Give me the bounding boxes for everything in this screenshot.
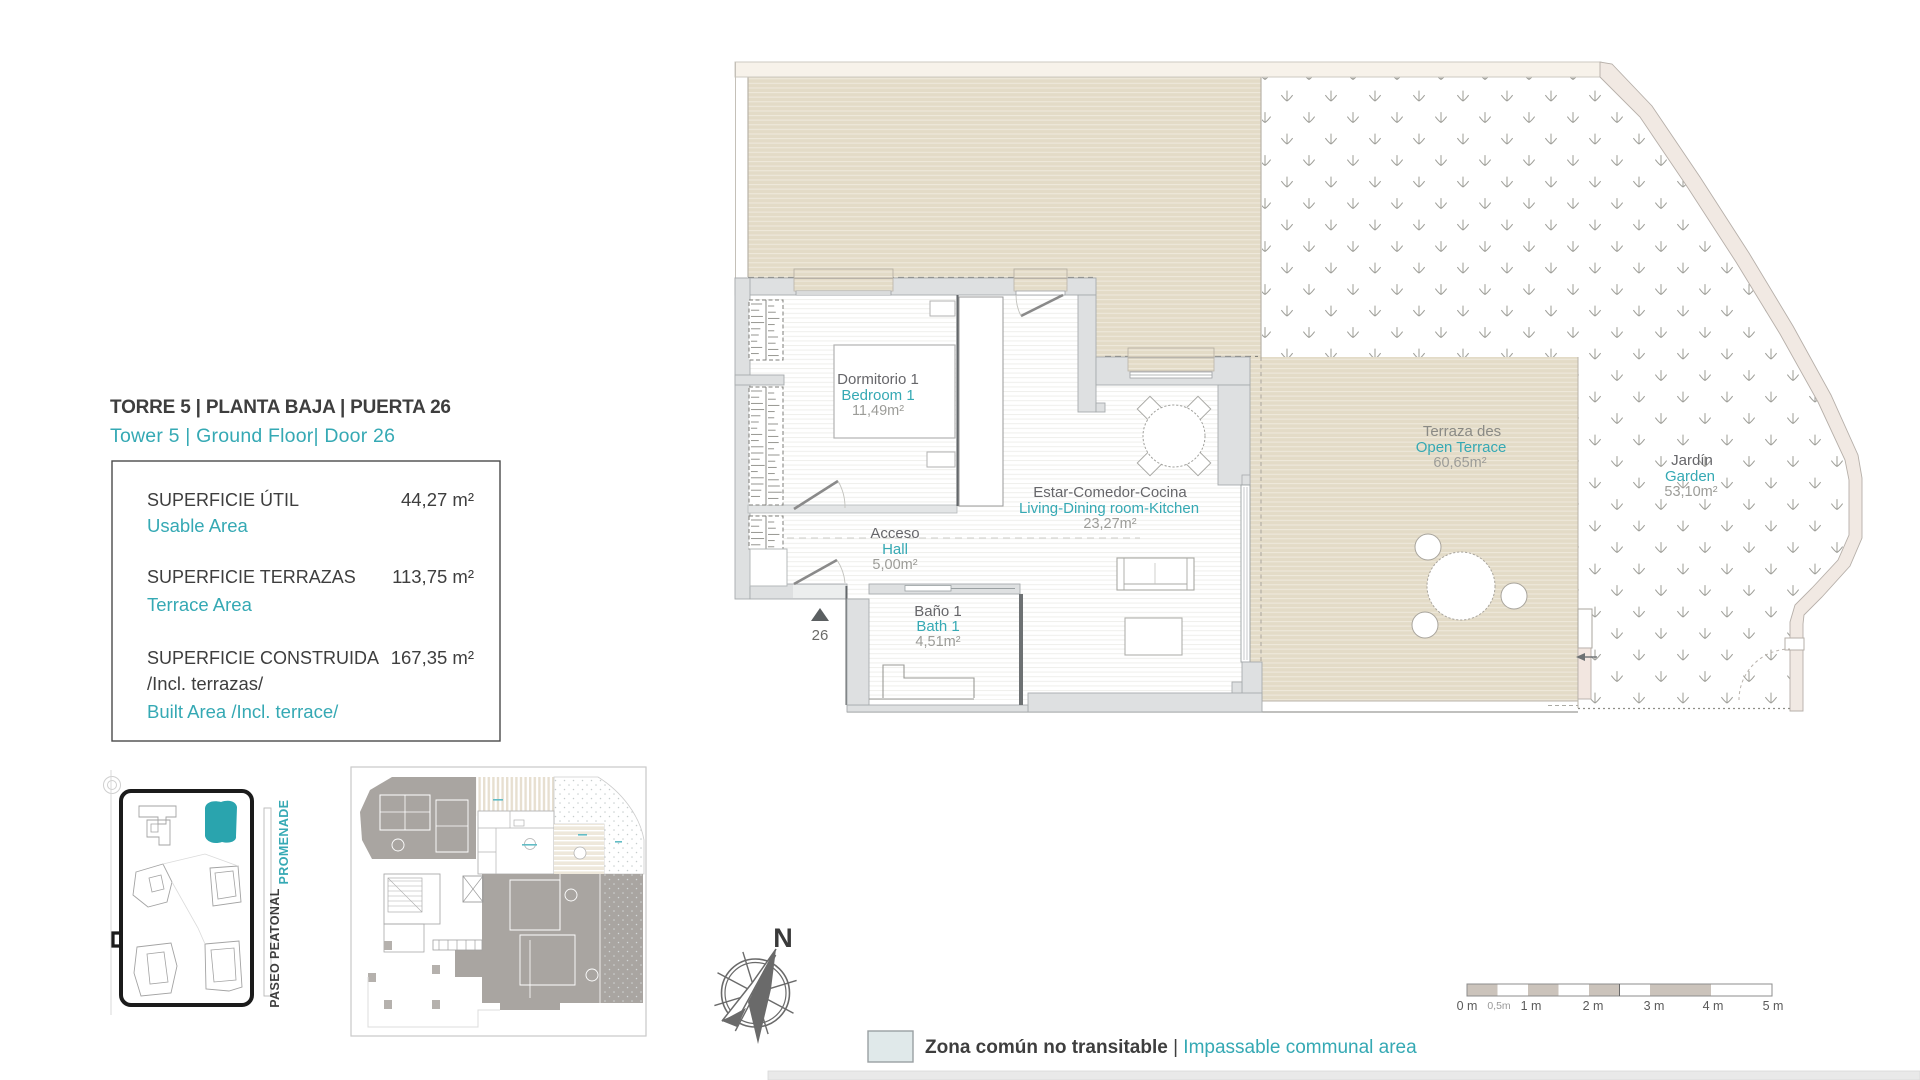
svg-text:Terrace Area: Terrace Area (147, 594, 253, 615)
svg-text:N: N (773, 923, 793, 953)
svg-text:0,5m: 0,5m (1487, 1000, 1511, 1012)
svg-text:SUPERFICIE CONSTRUIDA: SUPERFICIE CONSTRUIDA (147, 648, 379, 668)
svg-text:60,65m²: 60,65m² (1433, 455, 1486, 471)
svg-text:4,51m²: 4,51m² (915, 634, 960, 650)
svg-text:Zona común no transitable | Im: Zona común no transitable | Impassable c… (925, 1037, 1417, 1058)
svg-text:0 m: 0 m (1457, 999, 1478, 1013)
svg-text:Garden: Garden (1665, 468, 1715, 485)
svg-text:PASEO PEATONAL: PASEO PEATONAL (268, 888, 282, 1008)
svg-text:TORRE 5 | PLANTA BAJA | PUERTA: TORRE 5 | PLANTA BAJA | PUERTA 26 (110, 397, 451, 418)
svg-text:3 m: 3 m (1644, 999, 1665, 1013)
svg-text:Built Area /Incl. terrace/: Built Area /Incl. terrace/ (147, 701, 339, 722)
svg-text:11,49m²: 11,49m² (852, 403, 904, 419)
svg-text:PROMENADE: PROMENADE (277, 800, 291, 885)
svg-text:26: 26 (812, 627, 829, 644)
svg-text:Open Terrace: Open Terrace (1416, 439, 1507, 456)
svg-text:SUPERFICIE TERRAZAS: SUPERFICIE TERRAZAS (147, 567, 356, 587)
svg-text:Dormitorio 1: Dormitorio 1 (837, 371, 919, 388)
svg-text:5,00m²: 5,00m² (872, 557, 917, 573)
svg-text:Hall: Hall (882, 541, 908, 558)
svg-text:Estar-Comedor-Cocina: Estar-Comedor-Cocina (1033, 484, 1187, 501)
svg-text:23,27m²: 23,27m² (1083, 516, 1136, 532)
svg-text:44,27 m²: 44,27 m² (401, 489, 474, 510)
svg-text:5 m: 5 m (1763, 999, 1784, 1013)
svg-text:4 m: 4 m (1703, 999, 1724, 1013)
svg-text:2 m: 2 m (1583, 999, 1604, 1013)
svg-text:Jardín: Jardín (1671, 452, 1713, 469)
svg-text:Living-Dining room-Kitchen: Living-Dining room-Kitchen (1019, 500, 1199, 517)
svg-text:SUPERFICIE ÚTIL: SUPERFICIE ÚTIL (147, 489, 299, 510)
svg-text:Bath 1: Bath 1 (916, 618, 959, 635)
svg-text:Acceso: Acceso (870, 525, 919, 542)
svg-text:Terraza des: Terraza des (1423, 423, 1501, 440)
svg-text:167,35 m²: 167,35 m² (391, 647, 474, 668)
svg-text:1 m: 1 m (1521, 999, 1542, 1013)
svg-text:Tower 5 | Ground Floor| Door 2: Tower 5 | Ground Floor| Door 26 (110, 425, 395, 447)
svg-text:113,75 m²: 113,75 m² (392, 566, 474, 587)
svg-text:53,10m²: 53,10m² (1664, 484, 1717, 500)
svg-text:/Incl. terrazas/: /Incl. terrazas/ (147, 673, 264, 694)
svg-text:Usable Area: Usable Area (147, 515, 248, 536)
svg-text:Bedroom 1: Bedroom 1 (841, 387, 914, 404)
